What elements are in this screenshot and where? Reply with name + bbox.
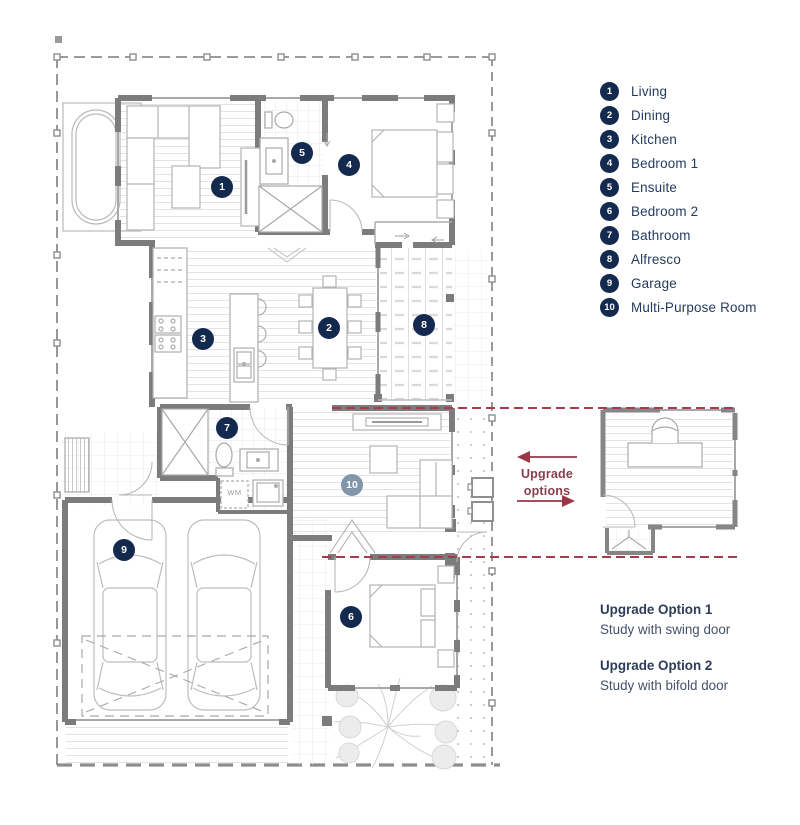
upgrade-options-block: Upgrade Option 1 Study with swing door U… <box>600 600 790 712</box>
upgrade-option-2: Upgrade Option 2 Study with bifold door <box>600 656 790 696</box>
legend-item-bedroom-1: 4 Bedroom 1 <box>600 154 757 173</box>
bushes <box>336 685 457 769</box>
room-marker-bedroom2: 6 <box>340 606 362 628</box>
garage-contents <box>76 520 279 720</box>
legend-number-badge: 10 <box>600 298 619 317</box>
rear-paving <box>454 250 492 402</box>
legend-label: Ensuite <box>631 180 677 195</box>
legend-label: Bedroom 2 <box>631 204 698 219</box>
room-marker-bedroom1: 4 <box>338 154 360 176</box>
pillow <box>421 620 435 647</box>
legend-item-living: 1 Living <box>600 82 757 101</box>
room-marker-dining: 2 <box>318 317 340 339</box>
upgrade-option-2-desc: Study with bifold door <box>600 676 790 696</box>
legend-number-badge: 2 <box>600 106 619 125</box>
legend-number-badge: 3 <box>600 130 619 149</box>
pillow <box>421 589 435 616</box>
legend-number-badge: 5 <box>600 178 619 197</box>
legend-item-dining: 2 Dining <box>600 106 757 125</box>
legend-number-badge: 9 <box>600 274 619 293</box>
bedroom2-furniture <box>370 566 454 667</box>
legend-label: Dining <box>631 108 670 123</box>
pillow <box>437 132 453 162</box>
room-marker-ensuite: 5 <box>291 142 313 164</box>
pillow <box>437 164 453 194</box>
floorplan-page: 1 2 3 4 5 6 7 8 9 10 WM 1 Living 2 Dinin… <box>0 0 800 825</box>
legend-label: Living <box>631 84 667 99</box>
desk <box>628 443 702 467</box>
legend-label: Garage <box>631 276 677 291</box>
legend-item-garage: 9 Garage <box>600 274 757 293</box>
toilet-tank <box>216 468 233 476</box>
bedside-table <box>437 104 454 122</box>
legend-label: Bedroom 1 <box>631 156 698 171</box>
upgrade-option-2-title: Upgrade Option 2 <box>600 656 790 676</box>
room-legend: 1 Living 2 Dining 3 Kitchen 4 Bedroom 1 … <box>600 82 757 317</box>
bedside-table <box>438 650 454 667</box>
legend-label: Multi-Purpose Room <box>631 300 757 315</box>
garden <box>334 678 457 769</box>
upgrade-options-callout: Upgrade options <box>503 466 591 500</box>
toilet-bowl <box>216 443 232 467</box>
bedside-table <box>438 566 454 583</box>
car <box>188 520 260 710</box>
legend-item-alfresco: 8 Alfresco <box>600 250 757 269</box>
upgrade-option-1-title: Upgrade Option 1 <box>600 600 790 620</box>
bedside-table <box>437 200 454 218</box>
cooktop <box>155 335 181 352</box>
upgrade-option-1-desc: Study with swing door <box>600 620 790 640</box>
legend-number-badge: 1 <box>600 82 619 101</box>
gravel-strip <box>456 410 496 763</box>
study-porch-floor <box>609 530 651 553</box>
room-marker-garage: 9 <box>113 539 135 561</box>
room-marker-kitchen: 3 <box>192 328 214 350</box>
toilet-bowl <box>275 112 293 128</box>
legend-number-badge: 7 <box>600 226 619 245</box>
chair <box>652 418 678 443</box>
upgrade-option-1: Upgrade Option 1 Study with swing door <box>600 600 790 640</box>
room-marker-bathroom: 7 <box>216 417 238 439</box>
tilt-door-guides <box>86 640 264 712</box>
legend-item-bathroom: 7 Bathroom <box>600 226 757 245</box>
room-marker-alfresco: 8 <box>413 314 435 336</box>
legend-label: Alfresco <box>631 252 681 267</box>
arrow-left-head <box>517 451 530 463</box>
coffee-table <box>172 166 200 208</box>
legend-item-ensuite: 5 Ensuite <box>600 178 757 197</box>
legend-number-badge: 6 <box>600 202 619 221</box>
robe-slider-arrows <box>395 233 444 243</box>
mpr-table <box>370 446 397 473</box>
legend-item-kitchen: 3 Kitchen <box>600 130 757 149</box>
upgrade-callout-line1: Upgrade <box>503 466 591 483</box>
room-marker-mpr: 10 <box>341 474 363 496</box>
upgrade-callout-line2: options <box>503 483 591 500</box>
side-path <box>292 519 330 765</box>
tv-unit <box>241 148 261 226</box>
robe-front <box>375 222 452 245</box>
legend-number-badge: 4 <box>600 154 619 173</box>
legend-label: Kitchen <box>631 132 677 147</box>
driveway <box>66 726 288 763</box>
room-marker-living: 1 <box>211 176 233 198</box>
patio-water-tank <box>65 438 89 492</box>
legend-number-badge: 8 <box>600 250 619 269</box>
washing-machine-label: WM <box>221 488 248 497</box>
legend-label: Bathroom <box>631 228 691 243</box>
legend-item-multi-purpose-room: 10 Multi-Purpose Room <box>600 298 757 317</box>
toilet-tank <box>265 112 272 128</box>
bed1 <box>372 130 437 197</box>
legend-item-bedroom-2: 6 Bedroom 2 <box>600 202 757 221</box>
